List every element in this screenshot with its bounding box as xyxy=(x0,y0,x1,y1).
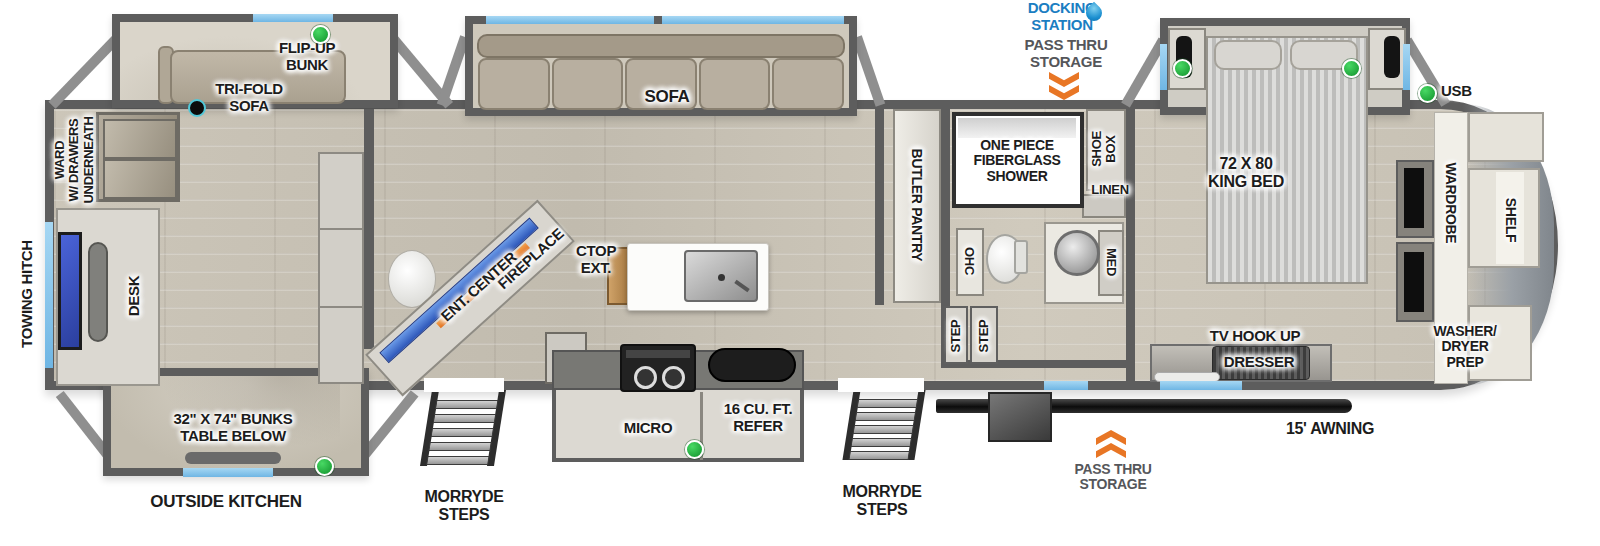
sink-faucet xyxy=(734,280,749,292)
sofa-slide-window-right xyxy=(662,16,844,24)
outside-kitchen-label: OUTSIDE KITCHEN xyxy=(150,493,301,512)
butler-pantry-label: BUTLER PANTRY xyxy=(908,149,923,262)
nightstand-window xyxy=(1384,36,1400,78)
burner xyxy=(634,366,657,389)
chevron-up-icon xyxy=(1096,443,1126,458)
micro-label: MICRO xyxy=(624,420,673,437)
slide-bevel xyxy=(852,35,885,106)
ohc-label: OHC xyxy=(962,247,976,275)
ladder-rung xyxy=(435,400,498,409)
entry-door-opening-front xyxy=(424,378,504,392)
ladder-rung xyxy=(855,412,916,421)
outside-kitchen-hatch xyxy=(183,468,273,477)
med-label: MED xyxy=(1104,248,1118,276)
pass-thru-storage-box xyxy=(988,392,1052,442)
chevron-down-icon xyxy=(1049,72,1079,87)
tri-fold-sofa-label: TRI-FOLD SOFA xyxy=(215,81,283,114)
dresser-label: DRESSER xyxy=(1224,354,1294,371)
ladder-rung xyxy=(426,456,489,465)
sofa-backrest xyxy=(477,34,845,58)
bed-slide-window-right xyxy=(1403,44,1410,90)
sofa-cushion xyxy=(552,58,624,110)
bath-bedroom-wall xyxy=(1126,109,1135,385)
shelf-label: SHELF xyxy=(1502,198,1517,242)
floorplan-canvas: DOCKING STATION PASS THRU STORAGE PASS T… xyxy=(0,0,1600,546)
ladder-rung xyxy=(848,451,909,460)
wardrobe-label: WARDROBE xyxy=(1442,163,1457,244)
towing-hitch-label: TOWING HITCH xyxy=(19,240,36,348)
wardrobe-door-opening xyxy=(1404,168,1424,228)
drawer xyxy=(103,159,177,199)
tv-hook-up-label: TV HOOK UP xyxy=(1210,328,1300,345)
green-indicator-icon xyxy=(685,440,704,459)
sofa-cushion xyxy=(699,58,771,110)
sink-drain xyxy=(718,274,725,281)
morryde-steps-rear-label: MORRYDE STEPS xyxy=(842,483,921,518)
chevron-down-icon xyxy=(1049,85,1079,100)
bunk-room-wall xyxy=(364,109,374,349)
washer-dryer-prep-label: WASHER/ DRYER PREP xyxy=(1433,324,1496,370)
ward-with-drawers xyxy=(96,112,180,202)
refer-label: 16 CU. FT. REFER xyxy=(724,401,793,434)
bedroom-wall-window xyxy=(1160,381,1242,390)
morryde-steps-front-label: MORRYDE STEPS xyxy=(424,488,503,523)
shower-label: ONE PIECE FIBERGLASS SHOWER xyxy=(973,138,1060,184)
step-right-label: STEP xyxy=(977,320,991,353)
sofa-cushion xyxy=(772,58,844,110)
ctop-ext-label: CTOP EXT. xyxy=(576,243,616,276)
front-closet-top-cabinet xyxy=(1468,112,1544,162)
sofa-slide-window-left xyxy=(486,16,654,24)
ladder-rung xyxy=(433,414,496,423)
wardrobe-door-opening xyxy=(1404,252,1424,312)
pantry-wall xyxy=(875,109,884,305)
nightstand-right xyxy=(1368,28,1406,90)
bunks-label: 32" X 74" BUNKS TABLE BELOW xyxy=(174,411,293,444)
cooktop-controls xyxy=(626,350,690,358)
morryde-steps-front xyxy=(420,390,506,466)
bedroom-wardrobe-cabinet-upper xyxy=(1396,160,1434,238)
chevron-up-icon xyxy=(1096,430,1126,445)
shower-pan xyxy=(958,118,1076,138)
bunk-slide-window xyxy=(253,14,333,22)
desk-chair xyxy=(88,242,108,342)
green-indicator-icon xyxy=(315,457,334,476)
slide-bevel xyxy=(48,34,121,109)
vanity-sink xyxy=(1054,230,1100,276)
sofa-label: SOFA xyxy=(644,88,689,107)
step-left-label: STEP xyxy=(949,320,963,353)
cabinet-divider xyxy=(320,228,362,230)
desk-monitor xyxy=(58,232,82,350)
green-indicator-icon xyxy=(1173,59,1192,78)
ladder-rung xyxy=(428,442,491,451)
morryde-steps-rear xyxy=(842,390,925,460)
linen-cabinet xyxy=(1082,194,1126,218)
shoe-box-label: SHOE BOX xyxy=(1090,131,1119,167)
bed-pillow-left xyxy=(1214,40,1282,70)
nightstand-left xyxy=(1168,28,1206,90)
green-indicator-icon xyxy=(1418,84,1437,103)
bunk-room-cabinets xyxy=(318,152,364,384)
rear-wall-window xyxy=(45,222,53,368)
island-sink xyxy=(684,250,758,302)
bunk-storage-bar xyxy=(185,452,281,464)
green-indicator-icon xyxy=(311,25,330,44)
refrigerator-top xyxy=(708,348,796,382)
wall-window xyxy=(1044,381,1088,390)
flip-up-bunk-label: FLIP-UP BUNK xyxy=(279,40,335,73)
king-bed-label: 72 X 80 KING BED xyxy=(1208,155,1284,190)
bedroom-wardrobe-cabinet-lower xyxy=(1396,242,1434,322)
ladder-rung xyxy=(853,425,914,434)
cooktop xyxy=(620,344,696,392)
pass-thru-storage-top-label: PASS THRU STORAGE xyxy=(1025,37,1108,70)
desk-label: DESK xyxy=(126,276,143,316)
ladder-rung xyxy=(851,438,912,447)
usb-label: USB xyxy=(1441,83,1472,100)
ladder-rung xyxy=(431,428,494,437)
speaker-icon xyxy=(188,99,206,117)
drawer xyxy=(103,119,177,159)
cabinet-divider xyxy=(320,306,362,308)
ward-label: WARD W/ DRAWERS UNDERNEATH xyxy=(53,116,96,203)
ladder-rung xyxy=(857,399,918,408)
green-indicator-icon xyxy=(1342,59,1361,78)
burner xyxy=(662,366,685,389)
sofa-cushion xyxy=(478,58,550,110)
entry-door-opening-rear xyxy=(838,378,924,392)
pass-thru-storage-bottom-label: PASS THRU STORAGE xyxy=(1074,462,1151,493)
linen-label: LINEN xyxy=(1091,183,1129,197)
bed-slide-window-left xyxy=(1160,44,1167,90)
toilet-tank xyxy=(1014,240,1028,274)
awning-label: 15' AWNING xyxy=(1286,420,1374,438)
